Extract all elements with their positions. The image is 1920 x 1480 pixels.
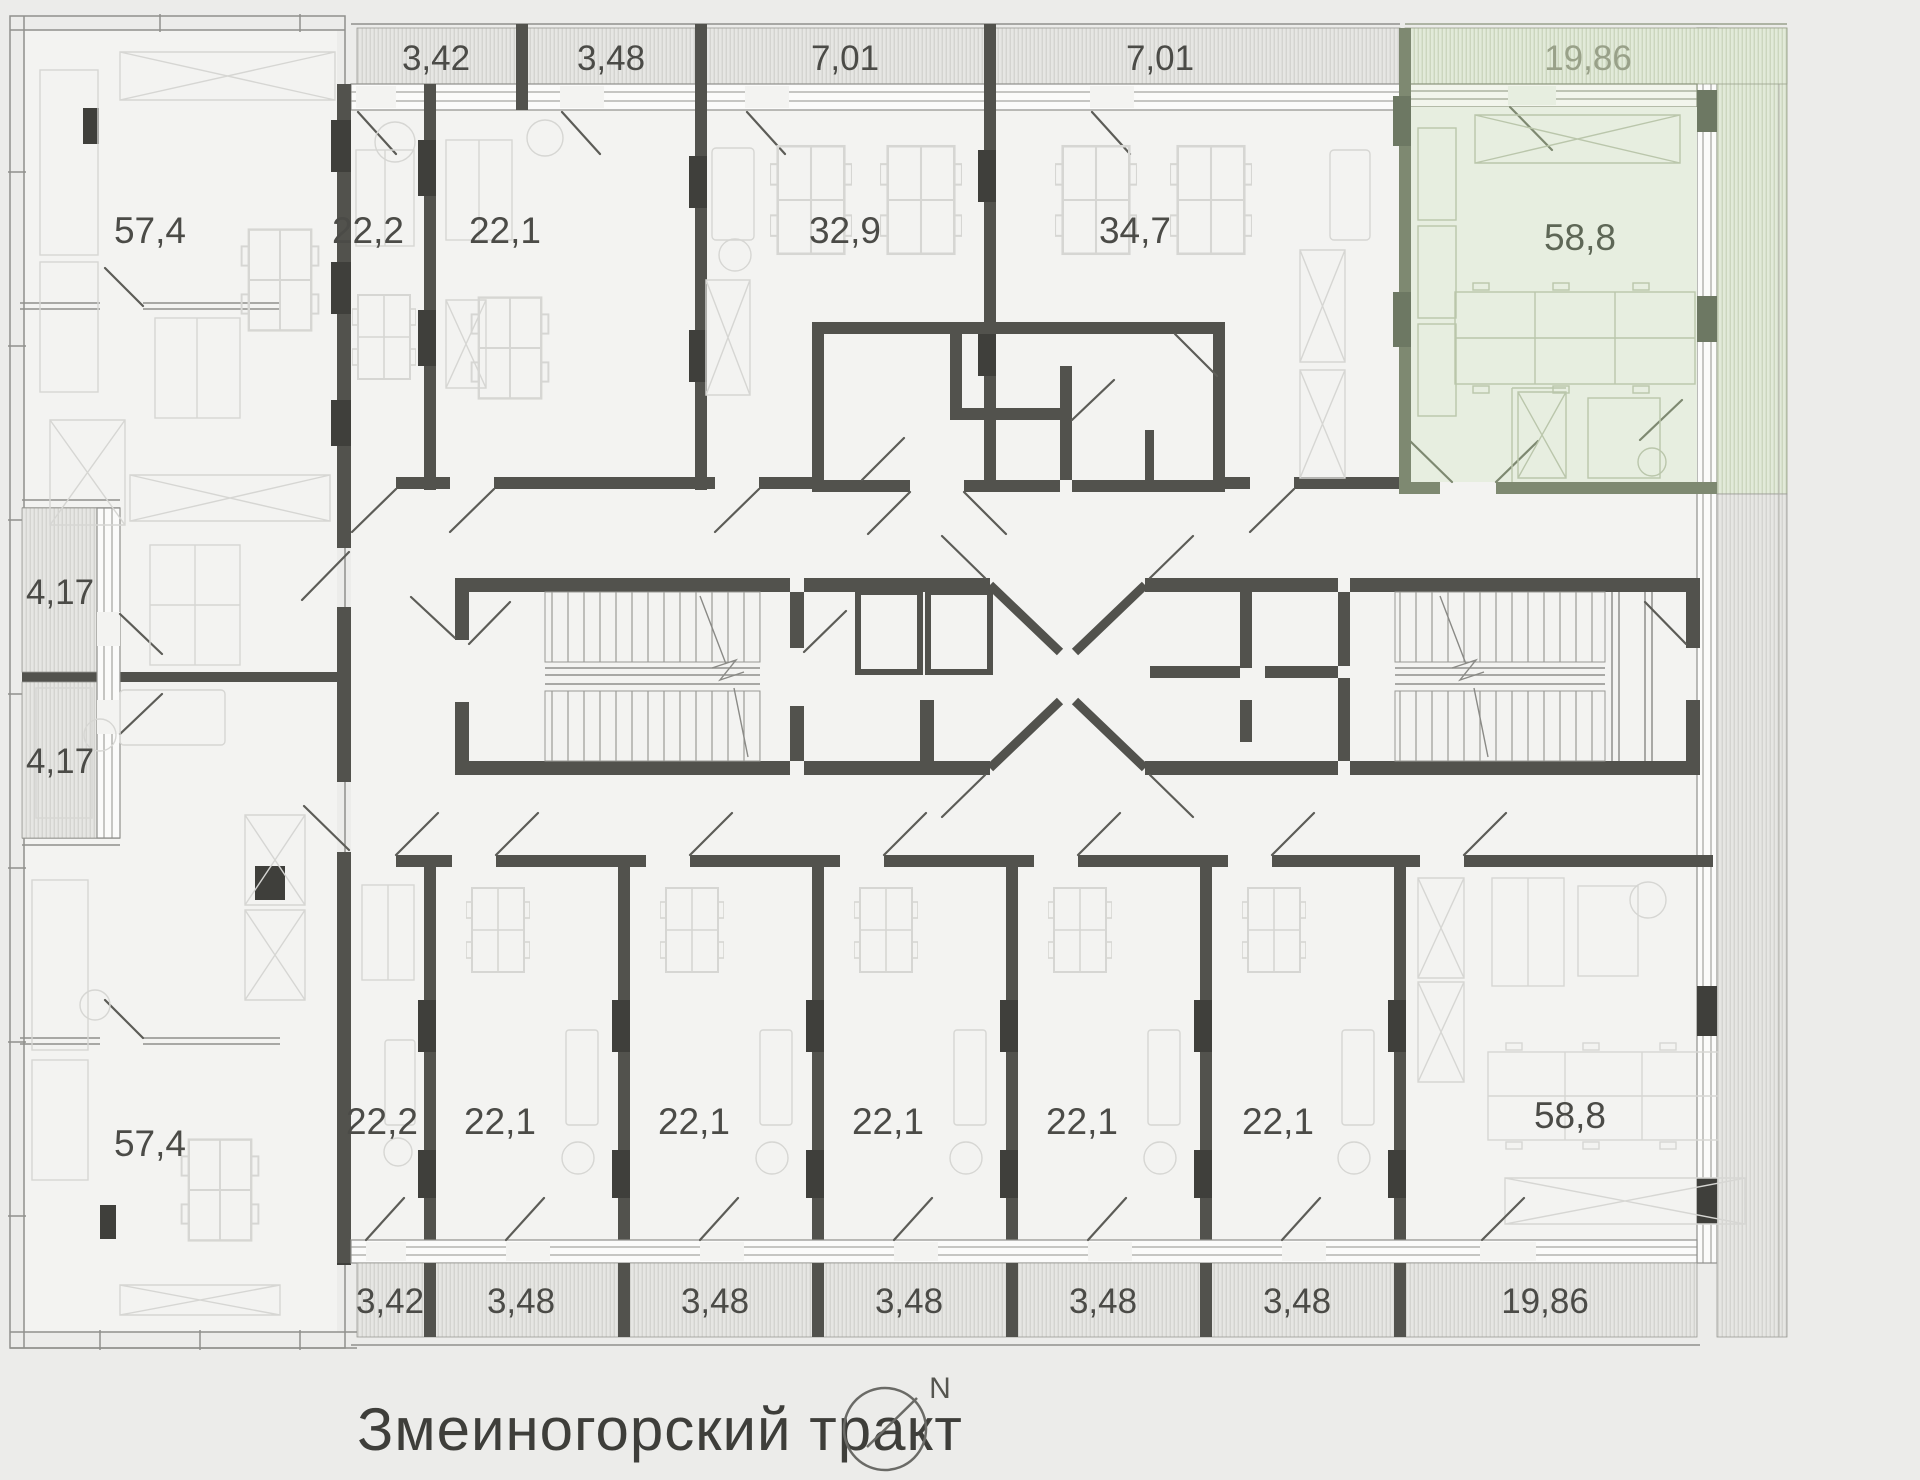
unit-area-label-bottom-57: 57,4 [114, 1123, 186, 1164]
terrace-green [1717, 28, 1787, 494]
floor-plan-page: 57,4 4,17 4,17 57,4 3,42 3,48 7,01 7,01 [0, 0, 1920, 1480]
left-wing: 57,4 4,17 4,17 57,4 [8, 14, 357, 1350]
highlight-area-label: 58,8 [1544, 217, 1616, 258]
unit-area-label: 32,9 [809, 210, 881, 251]
terrace-gray [1717, 494, 1787, 1337]
compass-north-label: N [929, 1372, 951, 1405]
unit-area-label-top-57: 57,4 [114, 210, 186, 251]
balcony-area-label: 3,48 [681, 1282, 749, 1321]
balcony-area-label: 3,48 [1069, 1282, 1137, 1321]
unit-area-label: 58,8 [1534, 1095, 1606, 1136]
balcony-area-label: 3,42 [402, 39, 470, 78]
unit-area-label: 22,1 [464, 1101, 536, 1142]
balcony-area-label: 3,48 [875, 1282, 943, 1321]
south-balconies [357, 1263, 1697, 1337]
street-label: Змеиногорский тракт [357, 1396, 963, 1463]
floor-plan: 57,4 4,17 4,17 57,4 3,42 3,48 7,01 7,01 [0, 0, 1920, 1480]
balcony-area-label: 3,42 [356, 1282, 424, 1321]
balcony-area-label-417-bottom: 4,17 [26, 742, 94, 781]
balcony-area-label: 19,86 [1501, 1282, 1589, 1321]
balcony-area-label: 3,48 [577, 39, 645, 78]
highlight-balcony-label: 19,86 [1544, 39, 1632, 78]
balcony-area-label-417-top: 4,17 [26, 573, 94, 612]
unit-area-label: 34,7 [1099, 210, 1171, 251]
unit-area-label: 22,1 [1242, 1101, 1314, 1142]
unit-area-label: 22,1 [1046, 1101, 1118, 1142]
balcony-area-label: 7,01 [811, 39, 879, 78]
unit-area-label: 22,1 [469, 210, 541, 251]
balcony-area-label: 3,48 [1263, 1282, 1331, 1321]
unit-area-label: 22,1 [852, 1101, 924, 1142]
unit-area-label: 22,2 [346, 1101, 418, 1142]
unit-area-label: 22,1 [658, 1101, 730, 1142]
unit-area-label: 22,2 [332, 210, 404, 251]
balcony-area-label: 3,48 [487, 1282, 555, 1321]
balcony-area-label: 7,01 [1126, 39, 1194, 78]
